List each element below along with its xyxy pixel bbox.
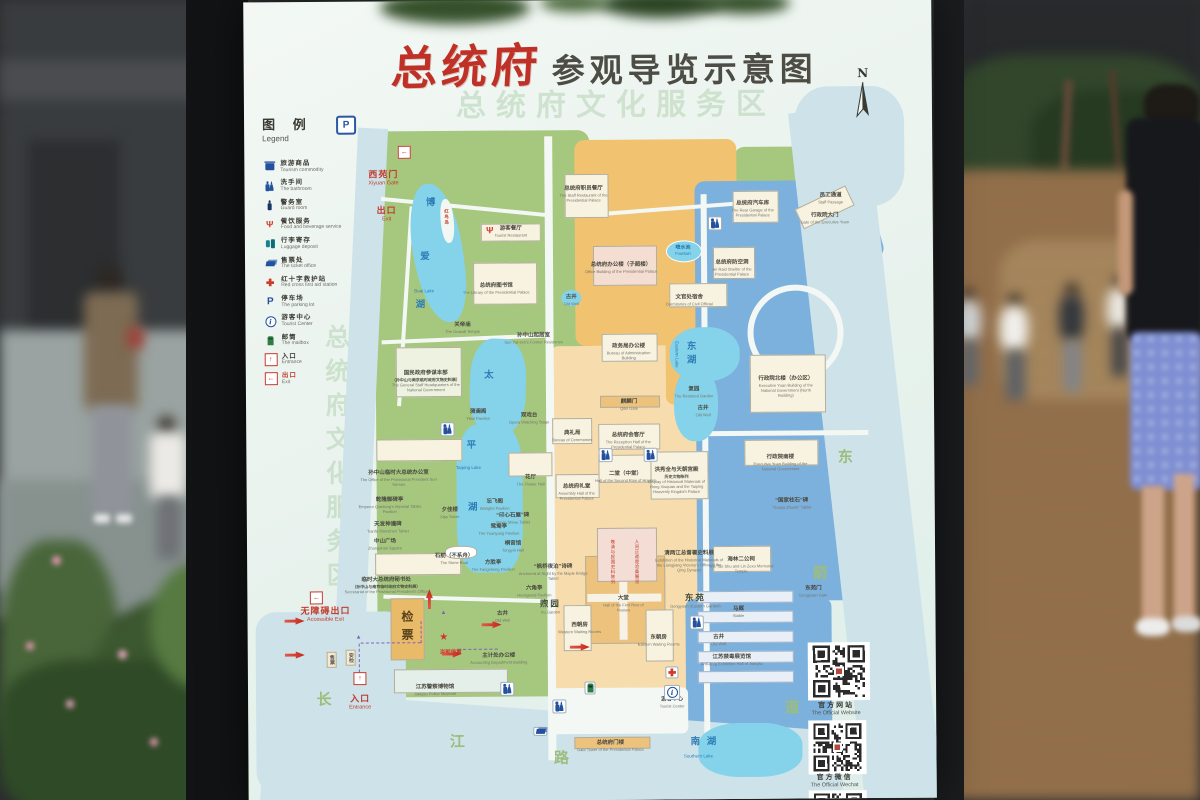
- changjiang-road-char-3: 路: [554, 750, 569, 769]
- star-icon: ★: [439, 633, 448, 643]
- luggage-icon: [263, 240, 277, 249]
- opera-stage: 观戏台Opera Watching Stage: [506, 412, 552, 424]
- legend-item-mailbox: 邮筒The mailbox: [264, 330, 374, 350]
- building-row: [697, 611, 793, 624]
- fg-person-leg: [1174, 474, 1194, 624]
- exit-icon: ←: [398, 146, 411, 159]
- restored-garden: 复园The Restored Garden: [672, 386, 716, 398]
- cross-icon: [665, 666, 678, 678]
- fork-icon: Ψ: [486, 226, 493, 235]
- legend-item-tourist-center: i游客中心Tourist Center: [263, 311, 373, 331]
- qr-official-website: [808, 642, 870, 700]
- eastern-lake-en: Eastern Lake: [674, 341, 680, 368]
- legend-item-bathroom: 洗手间The bathroom: [262, 176, 372, 196]
- fg-person-arm: [1118, 190, 1133, 295]
- guojia-zhushi-tablet: “国家柱石”碑"Guojia Zhushi" Tablet: [764, 497, 820, 509]
- sign-post-left: [186, 0, 248, 800]
- bg-person-r3-pants: [1112, 328, 1127, 376]
- enter-icon: ↑: [264, 353, 278, 366]
- mailbox-icon: [584, 681, 595, 694]
- qr-website-en: The Official Website: [794, 710, 878, 717]
- security-check: 安检: [346, 650, 356, 666]
- qr-website-zh: 官方网站: [794, 700, 878, 711]
- yuanyang-pavilion: 鸳鸯亭The Yuanyang Pavilion: [477, 524, 521, 536]
- qr-code-image: [811, 645, 867, 697]
- qr-wechat-en: The Official Wechat: [793, 782, 877, 789]
- boai-lake-en: Boai Lake: [414, 288, 434, 294]
- bg-flower: [52, 556, 61, 565]
- bg-person-r1-pants: [1006, 350, 1025, 400]
- old-well-xu: 古井Old Well: [495, 611, 510, 623]
- eastern-lake-zh: 东湖: [684, 341, 696, 368]
- legend: 图 例 Legend P 旅游商品Tourism commodity洗手间The…: [262, 114, 374, 389]
- exhibit-renjian: 人间正道是沧桑展览: [634, 539, 640, 584]
- building-row: [698, 671, 794, 684]
- bg-person-r1-shirt: [1000, 306, 1028, 352]
- wc-icon: [708, 216, 722, 230]
- antidrug-hall: 江苏禁毒展览馆Anti-drug Exhibition Hall of Jian…: [697, 654, 767, 666]
- building-exhibit-pink: [597, 528, 657, 582]
- dongyuan-garden: 东苑Dongyuan (Eastern Garden): [667, 592, 723, 608]
- compass-needle-icon: [855, 82, 871, 126]
- eastern-lake-tail: [674, 367, 719, 441]
- staff-restaurant: 总统府职员餐厅The Staff Restaurant of the Presi…: [551, 185, 617, 202]
- staff-passage: 员工通道Staff Passage: [818, 192, 843, 204]
- info-icon: i: [664, 685, 680, 700]
- qr-wechat-zh: 官方微信: [793, 772, 877, 783]
- hongxiuquan-exhibit: 洪秀全与天朝宫殿历史文物陈列Display of Historical Mate…: [645, 467, 707, 494]
- changjiang-road-char-2: 江: [450, 734, 465, 753]
- guandi-temple: 关帝庙The Guandi Temple: [437, 322, 487, 334]
- fg-person-shoe: [1136, 618, 1170, 636]
- tourist-restaurant: 游客餐厅Tourist Restaurant: [495, 225, 528, 237]
- bg-person-left2-torso: [150, 433, 186, 499]
- wc-icon: [262, 181, 276, 191]
- qr-code-image: [812, 793, 864, 800]
- ticket-icon: [263, 261, 277, 266]
- guard-icon: [263, 201, 277, 211]
- air-raid-shelter: 总统府防空洞Air Raid Shelter of the Presidenti…: [702, 259, 762, 276]
- wc-icon: [440, 422, 454, 436]
- fg-person-shoe: [1172, 616, 1200, 632]
- old-well-west: 古井Old Well: [564, 294, 579, 306]
- fangsheng-pavilion: 方胜亭The Fangsheng Pavilion: [469, 560, 517, 572]
- qr-code-partial: [809, 790, 867, 800]
- bg-person-left-pants: [92, 406, 132, 516]
- boai-lake-char-3: 湖: [416, 299, 428, 311]
- southern-lake-en: Southern Lake: [684, 753, 713, 759]
- compass-north-label: N: [857, 66, 868, 80]
- bg-flower: [118, 650, 127, 659]
- taiping-lake-en: Taiping Lake: [456, 465, 481, 471]
- qilin-gate: 麒麟门Qilin Gate: [620, 399, 638, 411]
- fg-person-shirt: [1126, 118, 1200, 343]
- xu-garden: 煦园Xu Garden: [540, 598, 561, 614]
- red-bird-island: 红鸟岛: [444, 209, 450, 226]
- bg-person-left-torso: [84, 292, 138, 410]
- p-icon: P: [263, 296, 277, 307]
- executive-yuan-north: 行政院北楼（办公区）Executive Yuan Building of the…: [753, 375, 819, 397]
- old-well-east: 古井Old Well: [711, 634, 726, 646]
- hexagonal-pavilion: 六角亭Hexagonal Pavilion: [512, 585, 556, 597]
- route-arrowhead: ▲: [356, 635, 362, 641]
- wc-icon: [599, 448, 613, 462]
- bg-person-left-shoe: [94, 514, 110, 523]
- legend-item-entrance: ↑入口Entrance: [264, 349, 374, 369]
- legend-title-en: Legend: [262, 134, 372, 144]
- legend-item-ticket-office: 售票处The ticket office: [263, 253, 373, 273]
- route-dashed: [421, 621, 422, 643]
- rear-garage: 总统府汽车库The Rear Garage of the Presidentia…: [722, 200, 784, 217]
- shop-icon: [262, 163, 276, 170]
- fountain: 喷水池Fountain: [675, 245, 691, 256]
- stable: 马厩Stable: [733, 606, 744, 618]
- hailin-temple: 海林二公祠The Tao Shu and Lin Zexu Memorial T…: [705, 556, 777, 573]
- legend-item-first-aid: 红十字救护站Red cross first aid station: [263, 272, 373, 292]
- reception-hall: 总统府会客厅The Reception Hall of the Presiden…: [595, 432, 661, 449]
- dongyuan-gate: 东苑门Dongyuan Gate: [799, 585, 827, 597]
- legend-item-luggage-deposit: 行李寄存Luggage deposit: [263, 234, 373, 254]
- legend-item-food-service: Ψ餐饮服务Food and beverage service: [263, 214, 373, 234]
- qr-code-image: [811, 723, 863, 771]
- qr-official-wechat: [808, 720, 866, 774]
- sign-post-right: [934, 0, 964, 800]
- maple-bridge-tablet: “枫桥夜泊”诗碑Anchored at Night by the Maple B…: [518, 564, 588, 581]
- staff-headquarters: 国民政府参谋本部（孙中山与南京临时政府文物史料展）The General Sta…: [388, 370, 464, 392]
- legend-item-tourism-commodity: 旅游商品Tourism commodity: [262, 157, 372, 177]
- executive-yuan-south: 行政院南楼Executive Yuan Building of the Nati…: [748, 454, 812, 471]
- legend-item-parking-lot: P停车场The parking lot: [263, 292, 373, 312]
- secretariat: 临时大总统府秘书处（孙中山与南京临时政府文物史料展）Secretariat of…: [344, 577, 428, 594]
- police-museum: 江苏警察博物馆Jiangsu Police Museum: [395, 684, 475, 696]
- boai-lake-char-1: 博: [426, 197, 438, 209]
- ceremony-bureau: 典礼局Bureau of Ceremonies: [549, 430, 595, 442]
- wc-icon: [690, 615, 704, 629]
- dongjiandao-char-2: 箭: [813, 565, 828, 584]
- legend-item-exit: ←出口Exit: [264, 369, 374, 389]
- ticket-icon: [533, 727, 547, 736]
- info-icon: i: [263, 316, 277, 327]
- bg-person-left2-pants: [157, 497, 181, 559]
- route-arrowhead: ▲: [440, 610, 446, 616]
- xiyuan-gate: 西苑门Xiyuan Gate: [368, 169, 398, 187]
- zichao-building: 总统府办公楼（子超楼）Office Building of the Presid…: [579, 262, 663, 274]
- photo-scene: 总统府文化服务区 总统府文化服务区 总统府 参观导览示意图 N 图 例 Lege…: [0, 0, 1200, 800]
- old-well-fuyuan: 古井Old Well: [696, 405, 711, 417]
- west-waiting-rooms: 西朝房Western Waiting Rooms: [558, 622, 602, 634]
- enter-icon: ↑: [353, 672, 366, 685]
- legend-items: 旅游商品Tourism commodity洗手间The bathroom警务室G…: [262, 157, 374, 389]
- ticket-sale: 售票: [327, 652, 337, 668]
- xijia-tower: 夕佳楼Xijia Tower: [440, 507, 459, 519]
- main-entrance: 入口Entrance: [349, 693, 371, 711]
- sun-residence: 孙中山起居室Sun Yat-sen's Former Residence: [502, 332, 566, 344]
- wc-icon: [552, 699, 566, 713]
- flower-hall: 花厅The Flower Hall: [511, 474, 551, 486]
- dongjiandao-char-1: 东: [838, 449, 853, 468]
- bg-person-left-head: [96, 266, 122, 294]
- bg-flower: [26, 642, 34, 650]
- exit-icon: ←: [264, 373, 278, 386]
- accounting-building: 主计处办公楼Accounting Department Building: [468, 652, 530, 664]
- first-hall: 大堂Hall of the First Row of Houses: [597, 595, 649, 612]
- executive-yuan-gate: 行政院大门Gate of the Executive Yuan: [800, 212, 850, 224]
- qr-wechat-label: 官方微信 The Official Wechat: [793, 772, 877, 789]
- library: 总统府图书馆The Library of the Presidential Pa…: [460, 282, 532, 294]
- admin-bureau: 政务局办公楼Bureau of Administration Building: [600, 343, 658, 360]
- wc-icon: [644, 448, 658, 462]
- southern-lake: [698, 723, 802, 778]
- building-footprint: [508, 452, 552, 476]
- title-main: 参观导览示意图: [552, 42, 818, 96]
- changjiang-road-char-1: 长: [317, 691, 332, 710]
- qianlong-pavilion: 乾隆御碑亭Emperor Qianlong's Imperial Tablet …: [355, 497, 425, 514]
- boai-lake-char-2: 爱: [420, 251, 432, 263]
- bg-person-left-bag: [128, 328, 143, 348]
- gate-tower: 总统府门楼Gate Tower of the Presidential Pala…: [568, 740, 652, 752]
- title-brand: 总统府: [389, 29, 543, 99]
- fg-person-shorts: [1130, 332, 1200, 490]
- legend-item-guard-room: 警务室Guard room: [263, 195, 373, 215]
- bg-person-r2-shirt: [1059, 294, 1084, 342]
- bg-person-r2-pants: [1064, 340, 1081, 392]
- east-waiting-rooms: 东朝房Eastern Waiting Rooms: [637, 634, 681, 646]
- tianfa-tablet: 天发神谶碑Tianfa Shenchen Tablet: [358, 521, 418, 533]
- sign-board: 总统府文化服务区 总统府文化服务区 总统府 参观导览示意图 N 图 例 Lege…: [243, 0, 937, 800]
- parking-badge-icon: P: [336, 116, 356, 135]
- bg-flower: [66, 700, 74, 708]
- bg-person-left-shoe: [116, 514, 132, 523]
- qr-website-label: 官方网站 The Official Website: [794, 700, 878, 717]
- yinxin-tablet: “印心石屋”碑Yinxin Shiwu Tablet: [487, 512, 539, 524]
- exit-icon: ←: [310, 591, 323, 604]
- taiping-lake-char-2: 平: [467, 440, 479, 452]
- fg-person-leg: [1142, 486, 1164, 626]
- zhongshan-square: 中山广场Zhongshan Square: [360, 538, 410, 550]
- bg-flower: [150, 738, 158, 746]
- sun-office: 孙中山临时大总统办公室The Office of the Provisional…: [356, 470, 440, 487]
- yilan-pavilion: 漪澜阁Yilan Pavilion: [466, 409, 490, 421]
- building-footprint: [376, 439, 462, 462]
- xiyuan-exit: 出口Exit: [377, 205, 397, 223]
- tongyin-hall: 桐音馆Tongyin Hall: [493, 540, 533, 552]
- taiping-lake-char-1: 太: [484, 370, 496, 382]
- compass: N: [846, 64, 880, 131]
- wangfei-pavilion: 忘飞阁Wangfei Pavilion: [475, 499, 515, 511]
- assembly-hall: 总统府礼堂Assembly Hall of the Presidential P…: [549, 483, 605, 500]
- civil-official-dorm: 文官处宿舍Dormitories of Civil Official: [661, 294, 717, 306]
- page-title: 总统府 参观导览示意图: [391, 28, 817, 97]
- southern-lake-zh: 南 湖: [691, 736, 719, 748]
- ticket-check: 检票: [399, 610, 414, 646]
- mailbox-icon: [264, 336, 278, 345]
- wc-icon: [500, 682, 514, 696]
- exhibit-late-qing: 晚清与民国史料陈列: [610, 539, 616, 584]
- cross-icon: [263, 279, 277, 287]
- fork-icon: Ψ: [263, 220, 277, 229]
